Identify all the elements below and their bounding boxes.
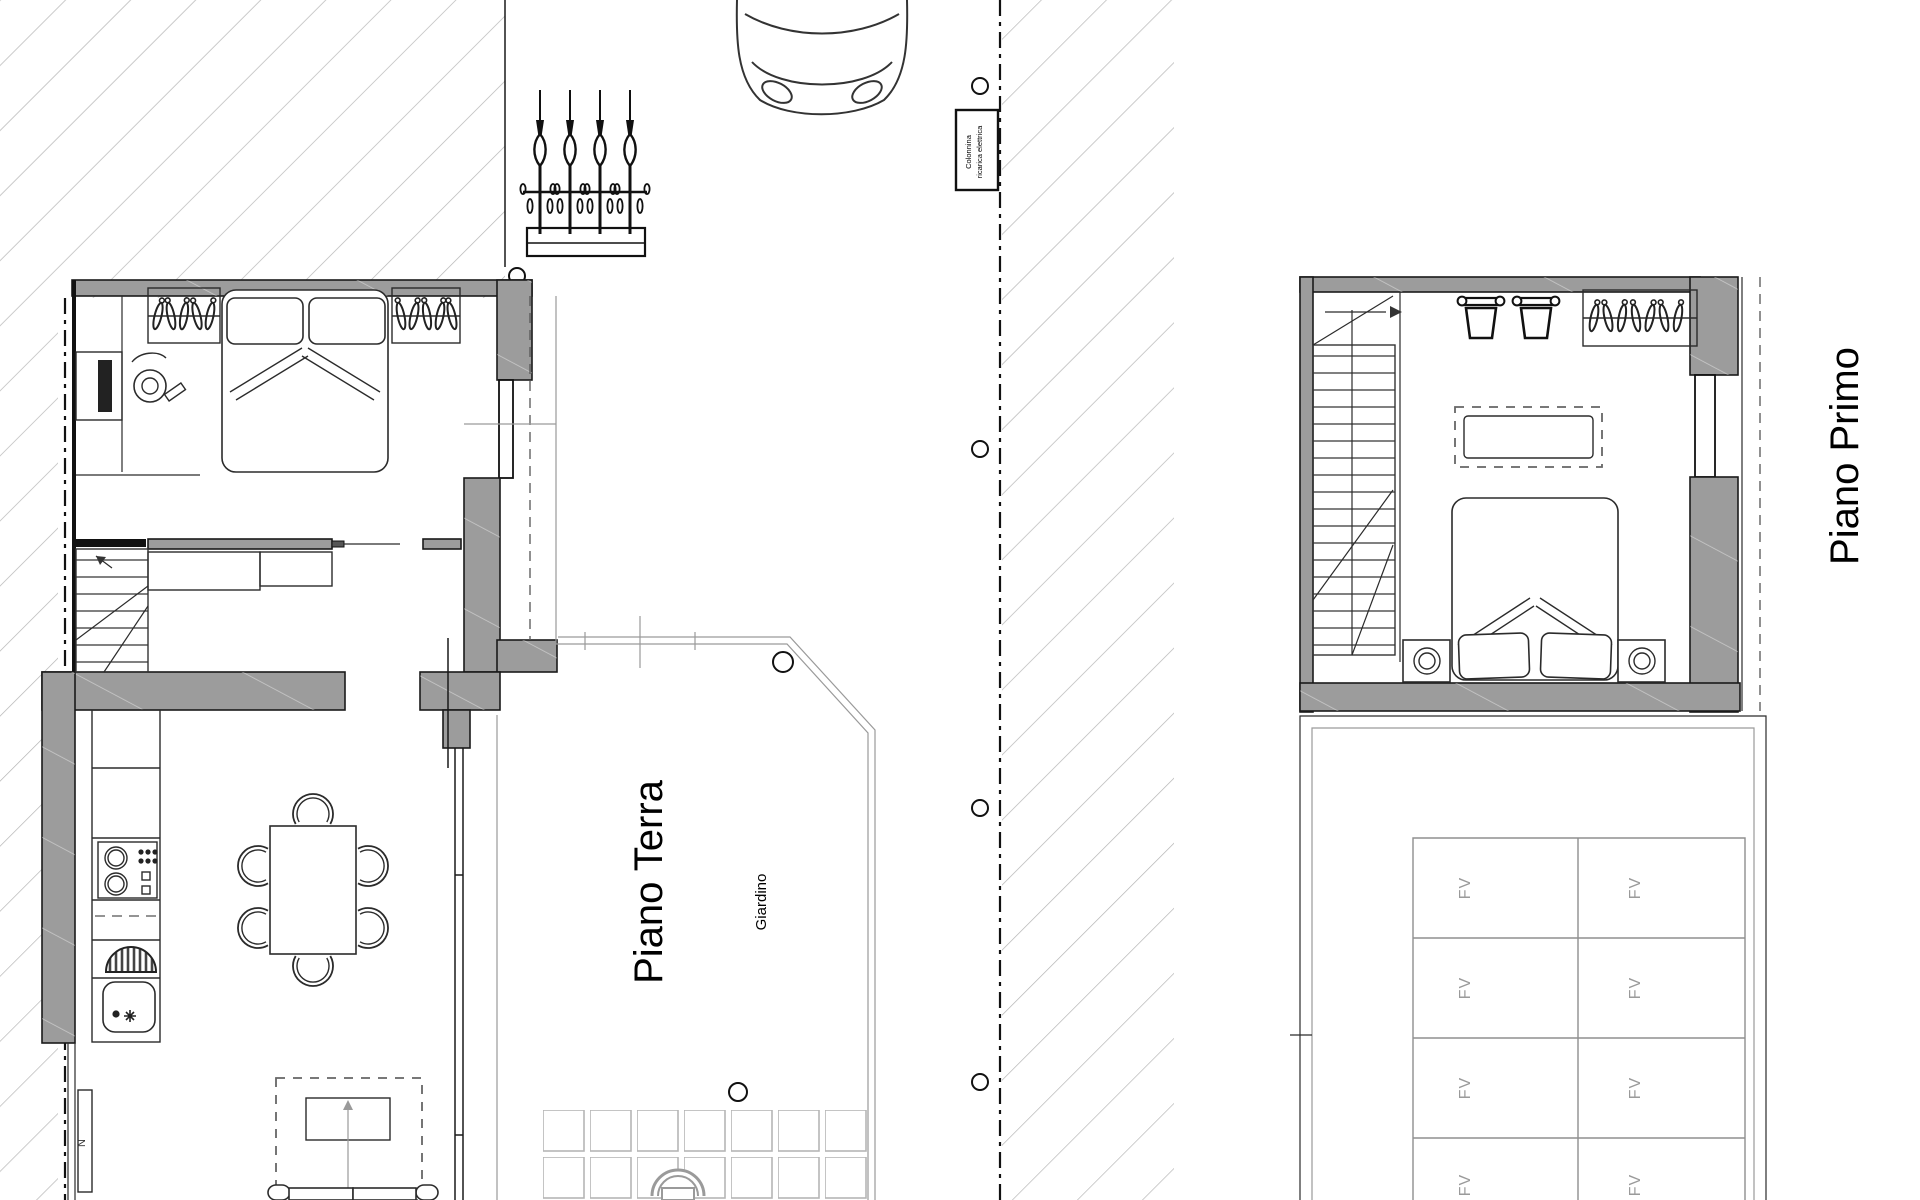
ground-floor-hall [76, 539, 461, 768]
first-floor-staircase [1313, 292, 1402, 662]
office-chair [134, 370, 166, 402]
site-surroundings: Colonnina ricarica elettrica [0, 0, 1174, 1200]
fv-panel-label: FV [1627, 1174, 1644, 1196]
arrow-up [343, 1100, 353, 1110]
fv-panel-label: FV [1627, 1077, 1644, 1099]
wardrobe-hangers [1583, 290, 1697, 346]
pillow [309, 298, 385, 344]
rack-frame [527, 228, 645, 256]
ground-floor-kitchen: N [76, 710, 463, 1200]
desk-monitor [98, 360, 112, 412]
post-circle [972, 1074, 988, 1090]
garden-label: Giardino [753, 874, 770, 931]
hatched-area-top-left [0, 0, 505, 298]
ground-floor-plan: N [42, 280, 671, 1200]
cupboard [260, 552, 332, 586]
wall-unit-tv: N [76, 1090, 92, 1192]
ground-floor-bedroom [76, 288, 460, 475]
skylight-rug [1455, 407, 1602, 467]
ev-charger-label-line1: Colonnina [964, 134, 973, 169]
appliance-dome [106, 947, 156, 972]
pillow [1540, 633, 1611, 679]
partition-counter [148, 539, 332, 549]
pillow [227, 298, 303, 344]
post-circle [972, 441, 988, 457]
kitchen-sink [103, 982, 155, 1032]
cupboard [148, 552, 260, 590]
cooktop [98, 842, 158, 898]
fv-panel-label: FV [1457, 1077, 1474, 1099]
ground-floor-title: Piano Terra [627, 779, 671, 984]
fv-panel-label: FV [1457, 977, 1474, 999]
garden-post-circle [729, 1083, 747, 1101]
staircase-down [76, 549, 148, 672]
chair [1513, 297, 1560, 338]
boundary-posts [509, 78, 988, 1090]
post-circle [972, 800, 988, 816]
fv-panel-label: FV [1457, 877, 1474, 899]
chair [1458, 297, 1505, 338]
hatched-band-center [1002, 0, 1174, 1200]
dining-table [270, 826, 356, 954]
dining-set [238, 794, 388, 986]
bedroom-window [499, 380, 513, 478]
nightstand-right [1618, 640, 1665, 682]
fv-panel-label: FV [1457, 1174, 1474, 1196]
floor-plan-canvas: Colonnina ricarica elettrica [0, 0, 1920, 1200]
first-floor-plan: FV FV FV FV FV FV FV FV Piano Primo [1290, 277, 1867, 1200]
roof-solar-panels: FV FV FV FV FV FV FV FV [1290, 716, 1766, 1200]
post-circle [972, 78, 988, 94]
first-floor-window [1695, 375, 1715, 477]
wall-unit-label: N [76, 1139, 88, 1147]
nightstand-left [1403, 640, 1450, 682]
fv-panel-label: FV [1627, 977, 1644, 999]
desk-and-chair [76, 352, 185, 420]
first-floor-bedroom [1403, 290, 1697, 682]
garden: Giardino [497, 616, 875, 1200]
ev-charger-box: Colonnina ricarica elettrica [956, 110, 998, 190]
pillow [1458, 633, 1529, 679]
bike-rack [520, 90, 649, 256]
living-rug-area [276, 1078, 422, 1200]
ev-charger-label-line2: ricarica elettrica [975, 125, 984, 178]
car-symbol [737, 0, 907, 114]
fv-panel-label: FV [1627, 877, 1644, 899]
first-floor-title: Piano Primo [1823, 347, 1867, 565]
sofa [268, 1185, 438, 1200]
closed-door-panel [76, 539, 146, 547]
garden-post-circle [773, 652, 793, 672]
patio-tiles [543, 1110, 869, 1200]
